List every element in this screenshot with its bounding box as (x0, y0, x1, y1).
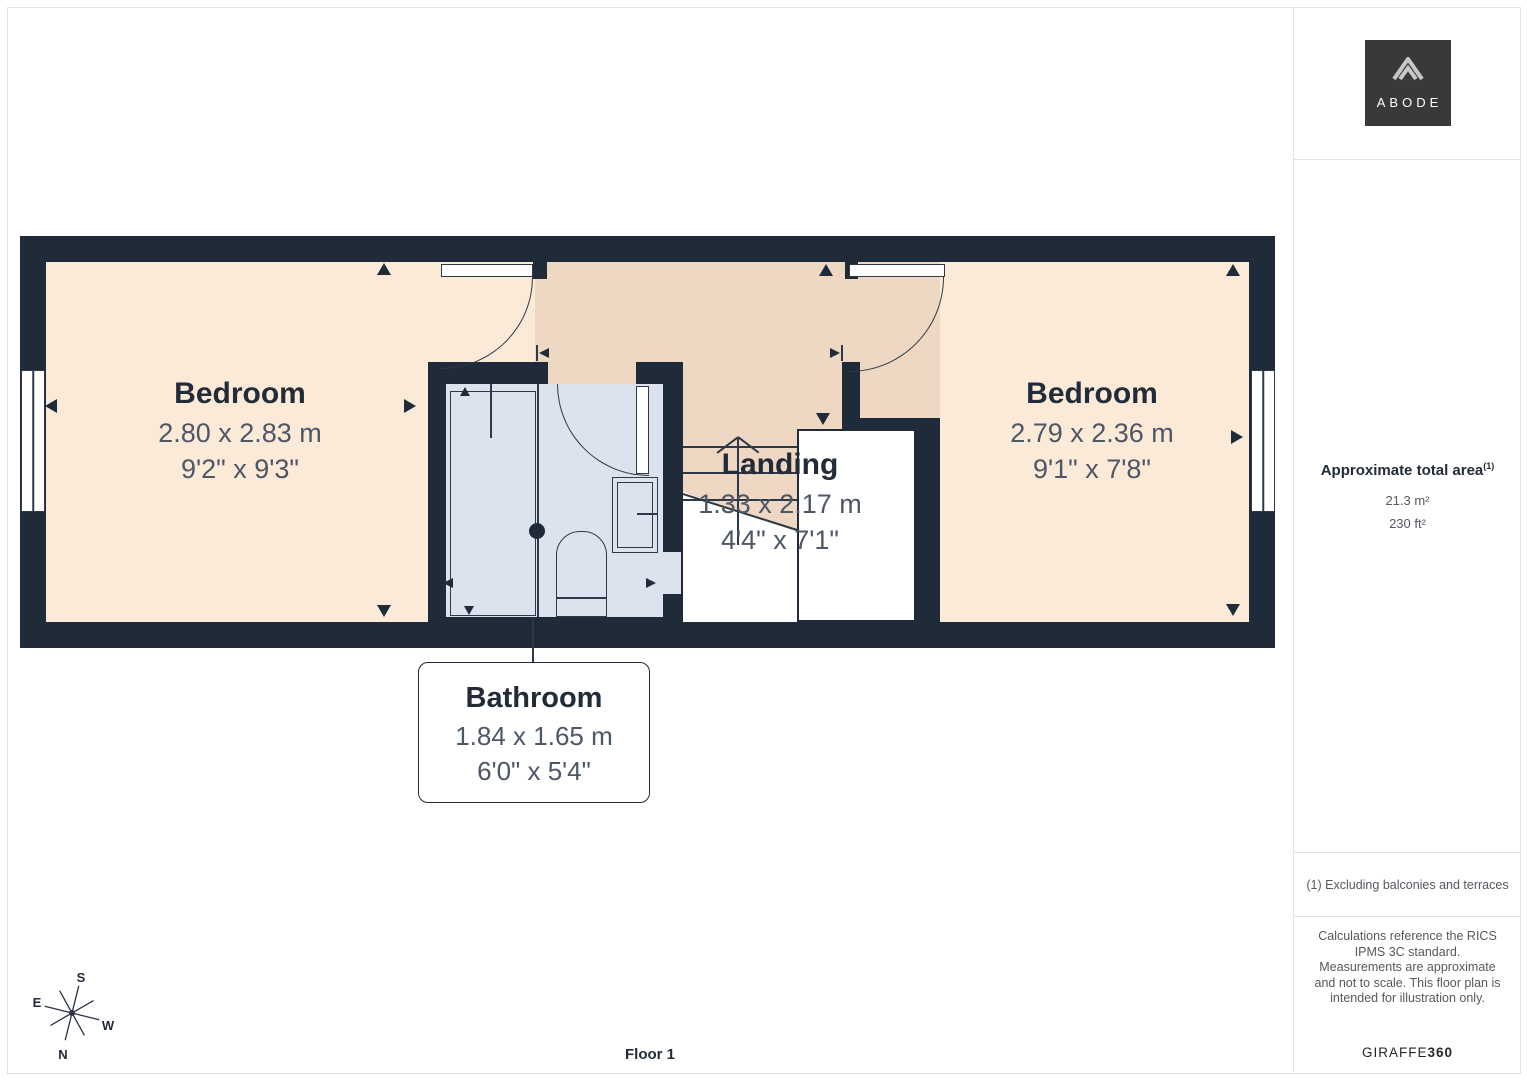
callout-leader-line (532, 618, 534, 663)
shower-fixture-line (490, 384, 492, 438)
room-size-imperial: 9'2" x 9'3" (181, 451, 299, 487)
wall-bottom (20, 622, 1275, 648)
compass-west-label: W (102, 1018, 115, 1033)
camera-marker-icon (443, 578, 453, 588)
room-size-imperial: 6'0" x 5'4" (477, 754, 591, 789)
area-title-text: Approximate total area (1321, 462, 1484, 479)
toilet-base-line (557, 597, 606, 599)
room-size-imperial: 4'4" x 7'1" (721, 522, 839, 558)
camera-marker-icon (819, 264, 833, 276)
brand-bold: 360 (1427, 1045, 1453, 1060)
footnote-text: (1) Excluding balconies and terraces (1306, 878, 1508, 892)
logo-section: ABODE (1294, 7, 1521, 160)
shower-partition (537, 384, 539, 617)
compass-south-label: S (77, 970, 86, 985)
window-pane-line (1262, 371, 1264, 511)
area-metric: 21.3 m² (1321, 489, 1495, 512)
area-title-footnote-ref: (1) (1483, 461, 1494, 471)
room-size-metric: 1.33 x 2.17 m (698, 486, 862, 522)
camera-marker-icon (377, 605, 391, 617)
room-name: Landing (722, 444, 839, 486)
room-size-imperial: 9'1" x 7'8" (1033, 451, 1151, 487)
giraffe360-brand: GIRAFFE360 (1362, 1045, 1453, 1060)
shower-enclosure (450, 391, 536, 616)
toilet (556, 531, 607, 617)
room-name: Bathroom (466, 677, 603, 719)
footnote-section: (1) Excluding balconies and terraces (1294, 853, 1521, 917)
window-pane-line (32, 371, 34, 511)
room-size-metric: 2.79 x 2.36 m (1010, 415, 1174, 451)
abode-logo-text: ABODE (1377, 95, 1443, 110)
room-name: Bedroom (1026, 373, 1158, 415)
area-section: Approximate total area(1) 21.3 m² 230 ft… (1294, 160, 1521, 853)
camera-marker-icon (460, 387, 470, 396)
camera-marker-icon (646, 578, 656, 588)
camera-marker-icon (928, 430, 940, 444)
partition-pivot-dot (529, 523, 545, 539)
door-leaf-bedroom-right (849, 264, 945, 277)
camera-marker-icon (816, 413, 830, 425)
abode-logo: ABODE (1365, 40, 1451, 126)
camera-marker-icon (1226, 604, 1240, 616)
camera-marker-icon (464, 606, 474, 615)
bedroom-right-label: Bedroom 2.79 x 2.36 m 9'1" x 7'8" (942, 373, 1242, 487)
brand-regular: GIRAFFE (1362, 1045, 1428, 1060)
window-left (21, 370, 45, 512)
camera-marker-icon (1226, 264, 1240, 276)
camera-marker-icon (377, 263, 391, 275)
room-size-metric: 1.84 x 1.65 m (455, 719, 613, 754)
disclaimer-text: Calculations reference the RICS IPMS 3C … (1315, 929, 1501, 1007)
door-stop-arrow-icon (830, 348, 840, 358)
camera-marker-icon (45, 399, 57, 413)
window-right (1251, 370, 1275, 512)
door-stop-arrow-icon (539, 348, 549, 358)
landing-label: Landing 1.33 x 2.17 m 4'4" x 7'1" (630, 444, 930, 558)
floorplan-page: Bedroom 2.80 x 2.83 m 9'2" x 9'3" Bedroo… (0, 0, 1527, 1080)
area-imperial: 230 ft² (1321, 512, 1495, 535)
bathroom-door-opening (548, 362, 636, 384)
room-size-metric: 2.80 x 2.83 m (158, 415, 322, 451)
area-title: Approximate total area(1) (1321, 461, 1495, 479)
door-stop-bar (536, 345, 538, 361)
bathroom-floor-notch (663, 552, 681, 594)
info-sidebar: ABODE Approximate total area(1) 21.3 m² … (1293, 7, 1521, 1072)
compass-east-label: E (33, 995, 42, 1010)
door-post-left (533, 262, 547, 279)
camera-marker-icon (404, 399, 416, 413)
wall-top (20, 236, 1275, 262)
bedroom-left-label: Bedroom 2.80 x 2.83 m 9'2" x 9'3" (90, 373, 390, 487)
floor-label: Floor 1 (7, 1046, 1293, 1063)
bathroom-callout: Bathroom 1.84 x 1.65 m 6'0" x 5'4" (418, 662, 650, 803)
room-name: Bedroom (174, 373, 306, 415)
abode-logo-icon (1386, 57, 1430, 91)
disclaimer-section: Calculations reference the RICS IPMS 3C … (1294, 917, 1521, 1072)
compass-center-dot (69, 1010, 75, 1016)
door-leaf-bedroom-left (441, 264, 533, 277)
door-stop-bar (841, 345, 843, 361)
